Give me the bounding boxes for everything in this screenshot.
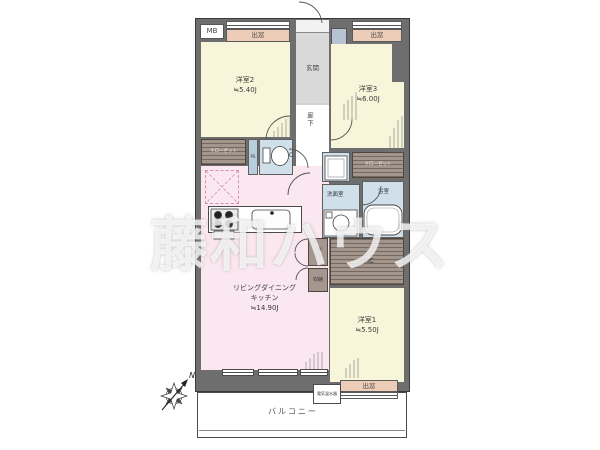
- room3-door-arc: [331, 119, 352, 140]
- cabinet-door-arc1: [295, 239, 308, 252]
- fridge-space-cross: [206, 171, 238, 203]
- washing-machine-icon: [325, 156, 347, 180]
- storage-door-arc: [296, 268, 308, 280]
- washbasin-icon: [324, 210, 357, 236]
- kitchen-sink-icon: [252, 210, 290, 229]
- floor-plan: バルコニー MB 出窓 出窓 洋室2 ≒5.40J 玄関 玄関収納 洋室3 ≒6…: [0, 0, 600, 450]
- fixtures-overlay: [0, 0, 600, 450]
- kitchen-stove-icon: [211, 209, 238, 239]
- water-heater-label: 電気温水器: [317, 392, 337, 396]
- water-heater-box: 電気温水器: [313, 384, 341, 404]
- bathroom-door-arc: [362, 186, 381, 205]
- front-door-arc: [299, 2, 322, 23]
- toilet-icon: [263, 147, 289, 166]
- cabinet-door-arc2: [295, 253, 308, 266]
- bathtub-icon: [364, 205, 402, 235]
- wc-door-arc: [289, 149, 308, 168]
- ldk-door-arc: [288, 173, 310, 195]
- door-arcs: [266, 2, 381, 280]
